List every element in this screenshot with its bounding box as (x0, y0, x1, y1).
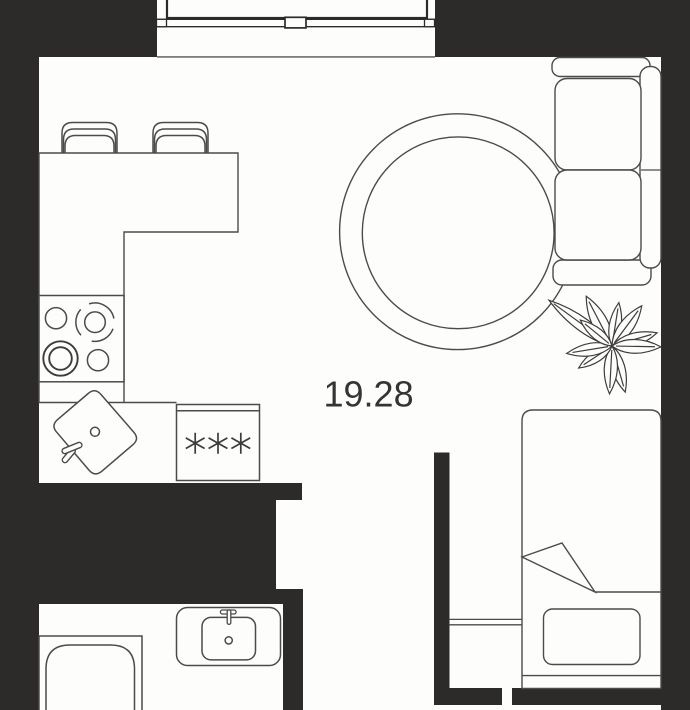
svg-text:19.28: 19.28 (324, 374, 414, 415)
